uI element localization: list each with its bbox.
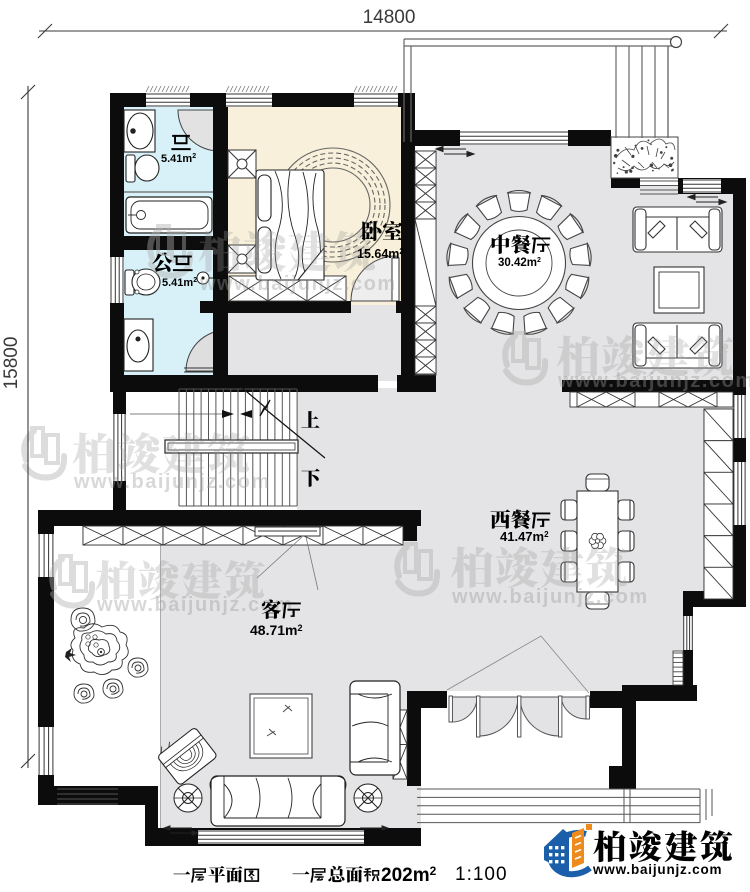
svg-text:www.baijunjz.com: www.baijunjz.com	[592, 862, 722, 877]
svg-text:www.baijunjz.com: www.baijunjz.com	[557, 370, 750, 392]
svg-text:15800: 15800	[1, 337, 22, 390]
svg-text:www.baijunjz.com: www.baijunjz.com	[451, 586, 649, 608]
svg-text:5.41m2: 5.41m2	[161, 153, 196, 165]
svg-text:41.47m2: 41.47m2	[500, 529, 549, 544]
svg-text:5.41m2: 5.41m2	[162, 277, 197, 289]
svg-text:www.baijunjz.com: www.baijunjz.com	[199, 273, 397, 295]
svg-text:14800: 14800	[363, 7, 416, 28]
svg-text:www.baijunjz.com: www.baijunjz.com	[73, 471, 271, 493]
svg-text:48.71m2: 48.71m2	[250, 622, 303, 638]
svg-text:30.42m2: 30.42m2	[498, 257, 541, 269]
svg-text:1:100: 1:100	[455, 864, 508, 885]
svg-text:15.64m2: 15.64m2	[357, 247, 404, 261]
svg-text:202m2: 202m2	[381, 864, 437, 886]
